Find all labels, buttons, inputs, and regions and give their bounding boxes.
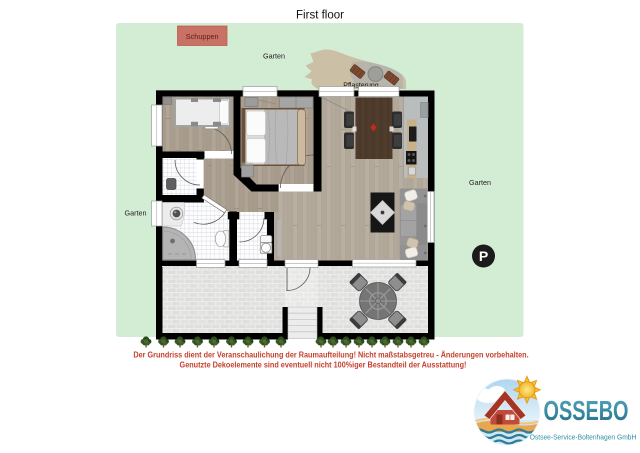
svg-text:OSSEBO: OSSEBO [544, 396, 629, 427]
svg-text:Garten: Garten [125, 209, 147, 218]
svg-text:First floor: First floor [296, 10, 344, 22]
svg-text:Garten: Garten [469, 178, 491, 187]
svg-text:Garten: Garten [263, 52, 285, 61]
svg-text:Schuppen: Schuppen [186, 32, 219, 41]
svg-text:Genutzte Dekoelemente sind eve: Genutzte Dekoelemente sind eventuell nic… [180, 360, 467, 369]
svg-text:Ostsee-Service-Boltenhagen Gmb: Ostsee-Service-Boltenhagen GmbH [530, 434, 637, 441]
svg-text:P: P [479, 248, 488, 264]
svg-text:Der Grundriss dient der Verans: Der Grundriss dient der Veranschaulichun… [133, 350, 528, 359]
